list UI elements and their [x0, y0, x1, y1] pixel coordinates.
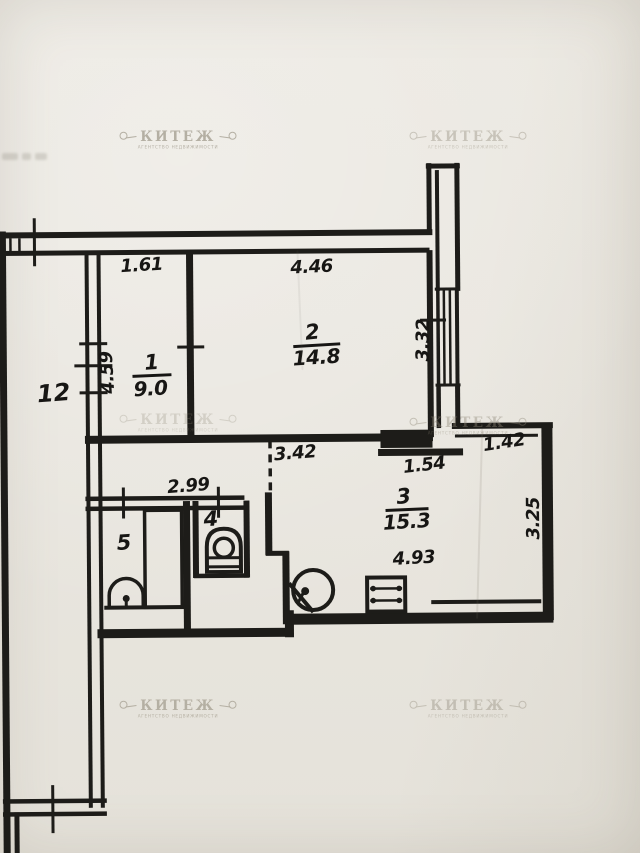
corner-sink-icon	[289, 570, 333, 612]
exterior-walls	[0, 215, 437, 853]
dim-hall-width: 2.99	[166, 474, 210, 498]
dim-room3-bottom: 4.93	[392, 547, 436, 571]
plan-drawing: 1.61 4.46 3.32 4.59 3.42 1.54 1.42 3.25 …	[0, 0, 640, 853]
washbasin-icon	[109, 578, 143, 608]
toilet-icon	[205, 529, 243, 572]
window-room2	[435, 289, 461, 385]
dim-hall-top: 3.42	[273, 441, 317, 465]
dim-room1-top: 1.61	[120, 254, 164, 278]
room-12-number: 12	[36, 378, 71, 409]
plan-linework	[0, 0, 640, 853]
dim-room1-left: 4.59	[96, 351, 120, 395]
dim-room2-right: 3.32	[412, 319, 433, 362]
room-2-area: 14.8	[292, 344, 341, 371]
bathtub-icon	[145, 510, 183, 607]
room-5-number: 5	[116, 530, 132, 555]
stove-icon	[367, 577, 405, 611]
room-3-number: 3	[395, 484, 411, 509]
dim-room3-right: 3.25	[523, 497, 544, 540]
room-1-number: 1	[143, 350, 159, 375]
floor-plan-page: 1.61 4.46 3.32 4.59 3.42 1.54 1.42 3.25 …	[0, 0, 640, 853]
room-3-area: 15.3	[382, 508, 431, 535]
room-4-number: 4	[203, 506, 219, 531]
corridor-walls	[0, 253, 116, 834]
room-2-number: 2	[304, 319, 320, 344]
room-1-area: 9.0	[133, 375, 168, 401]
east-walls	[419, 162, 555, 621]
